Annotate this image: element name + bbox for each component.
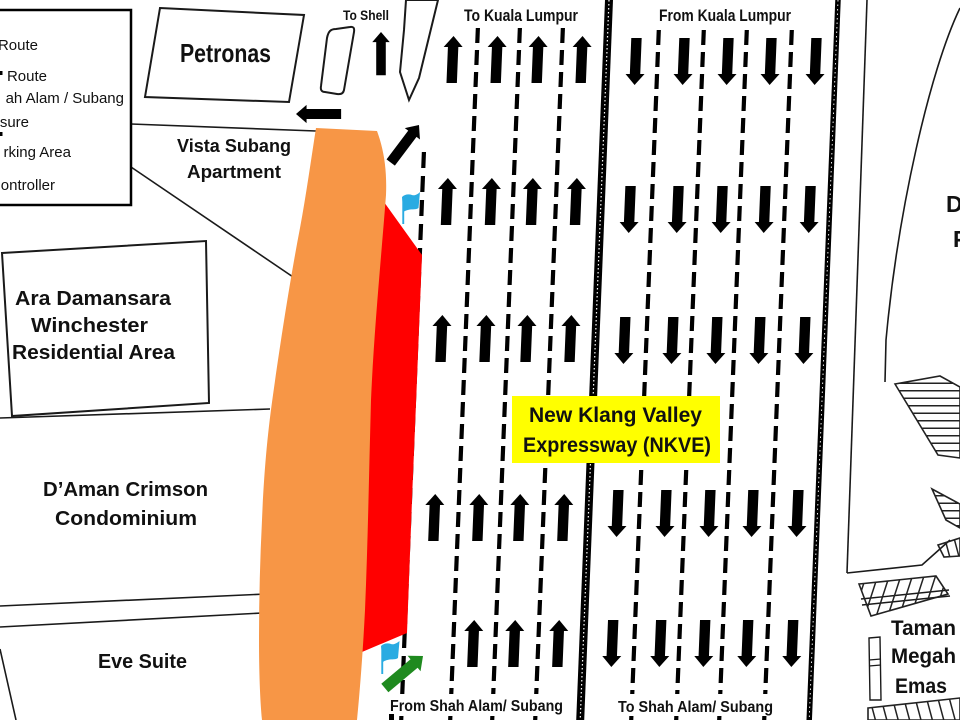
svg-text:Residential Area: Residential Area [12,342,176,364]
svg-text:Emas: Emas [895,675,947,698]
svg-text:To Shah Alam/ Subang: To Shah Alam/ Subang [618,699,773,716]
svg-text:To Shell: To Shell [343,7,389,23]
svg-text:Route: Route [7,68,47,85]
svg-text:Apartment: Apartment [187,162,281,182]
svg-text:P: P [953,226,960,252]
svg-text:Route: Route [0,37,38,54]
svg-text:ah Alam / Subang: ah Alam / Subang [6,90,124,107]
svg-text:Ara Damansara: Ara Damansara [15,288,172,310]
svg-text:Vista Subang: Vista Subang [177,136,291,156]
svg-text:D’Aman Crimson: D’Aman Crimson [43,479,208,501]
svg-text:From Shah Alam/ Subang: From Shah Alam/ Subang [390,698,563,715]
svg-text:To Kuala Lumpur: To Kuala Lumpur [464,7,578,25]
svg-text:From Kuala Lumpur: From Kuala Lumpur [659,7,791,25]
svg-text:Expressway (NKVE): Expressway (NKVE) [523,434,711,457]
svg-text:rking Area: rking Area [3,144,71,161]
svg-text:sure: sure [0,114,29,131]
svg-text:ontroller: ontroller [1,177,55,194]
svg-text:Petronas: Petronas [180,38,271,68]
svg-text:Eve Suite: Eve Suite [98,651,187,673]
svg-text:Winchester: Winchester [31,315,148,337]
svg-text:D: D [946,191,960,217]
svg-text:Taman: Taman [891,617,956,640]
svg-text:Megah: Megah [891,645,956,668]
svg-text:Condominium: Condominium [55,508,197,530]
svg-text:New Klang Valley: New Klang Valley [529,404,702,427]
